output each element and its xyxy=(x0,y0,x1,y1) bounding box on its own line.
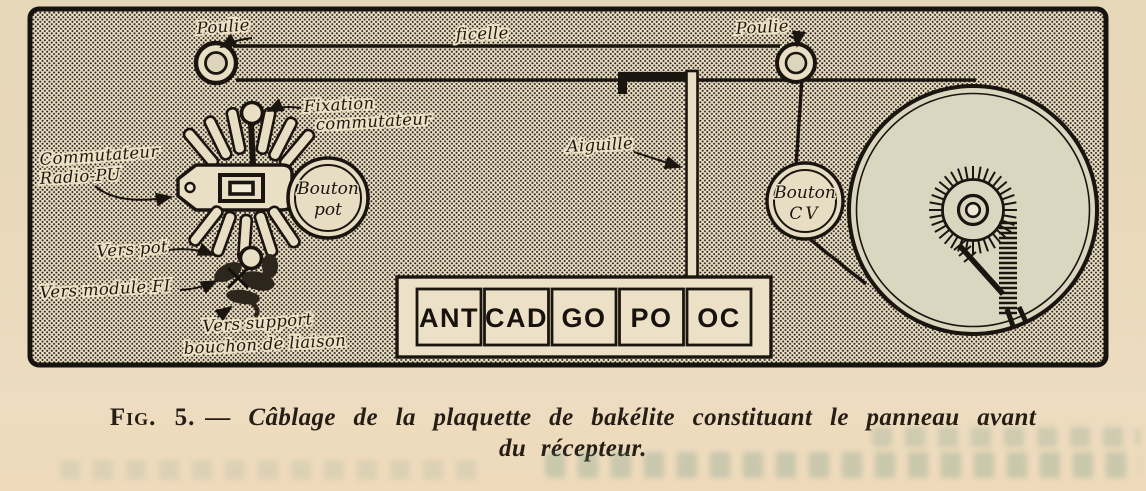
label-ficelle: ficelle xyxy=(453,23,508,44)
band-cell-go: GO xyxy=(561,303,606,333)
band-cell-ant: ANT xyxy=(419,303,479,333)
band-indicator-strip: ANT CAD GO PO OC xyxy=(397,277,771,357)
pulley-left-icon xyxy=(196,43,236,83)
band-cell-po: PO xyxy=(630,303,672,333)
band-cell-oc: OC xyxy=(697,303,741,333)
bouton-pot-label-line1: Bouton xyxy=(296,179,359,199)
bouton-pot-knob: Bouton pot xyxy=(288,158,368,238)
figure-diagram: ANT CAD GO PO OC xyxy=(0,0,1146,396)
pulley-right-icon xyxy=(777,44,815,82)
bouton-cv-label-line2: CV xyxy=(789,204,820,224)
caption-line-1: Fig. 5.— Câblage de la plaquette de baké… xyxy=(0,402,1146,434)
bouton-cv-label-line1: Bouton xyxy=(773,183,836,203)
fixation-screw-icon xyxy=(242,103,263,124)
fixation-stem-icon xyxy=(251,124,253,164)
switch-slot-inner-icon xyxy=(230,183,253,195)
label-aiguille: Aiguille xyxy=(564,134,633,157)
caption-figure-number: Fig. 5. xyxy=(110,404,196,431)
bouton-pot-label-line2: pot xyxy=(314,200,342,220)
band-cell-cad: CAD xyxy=(485,303,548,333)
figure-caption: Fig. 5.— Câblage de la plaquette de baké… xyxy=(0,402,1146,464)
wire-bundle-eyelet-icon xyxy=(241,248,262,269)
caption-text: — Câblage de la plaquette de bakélite co… xyxy=(205,404,1036,431)
tuning-drum-dial xyxy=(849,86,1097,334)
label-poulie-right: Poulie xyxy=(734,16,789,38)
bouton-cv-knob: Bouton CV xyxy=(767,163,843,239)
scanned-page: ANT CAD GO PO OC xyxy=(0,0,1146,491)
label-poulie-left: Poulie xyxy=(195,15,250,38)
plate-hole-icon xyxy=(186,183,195,192)
caption-line-2: du récepteur. xyxy=(0,434,1146,464)
